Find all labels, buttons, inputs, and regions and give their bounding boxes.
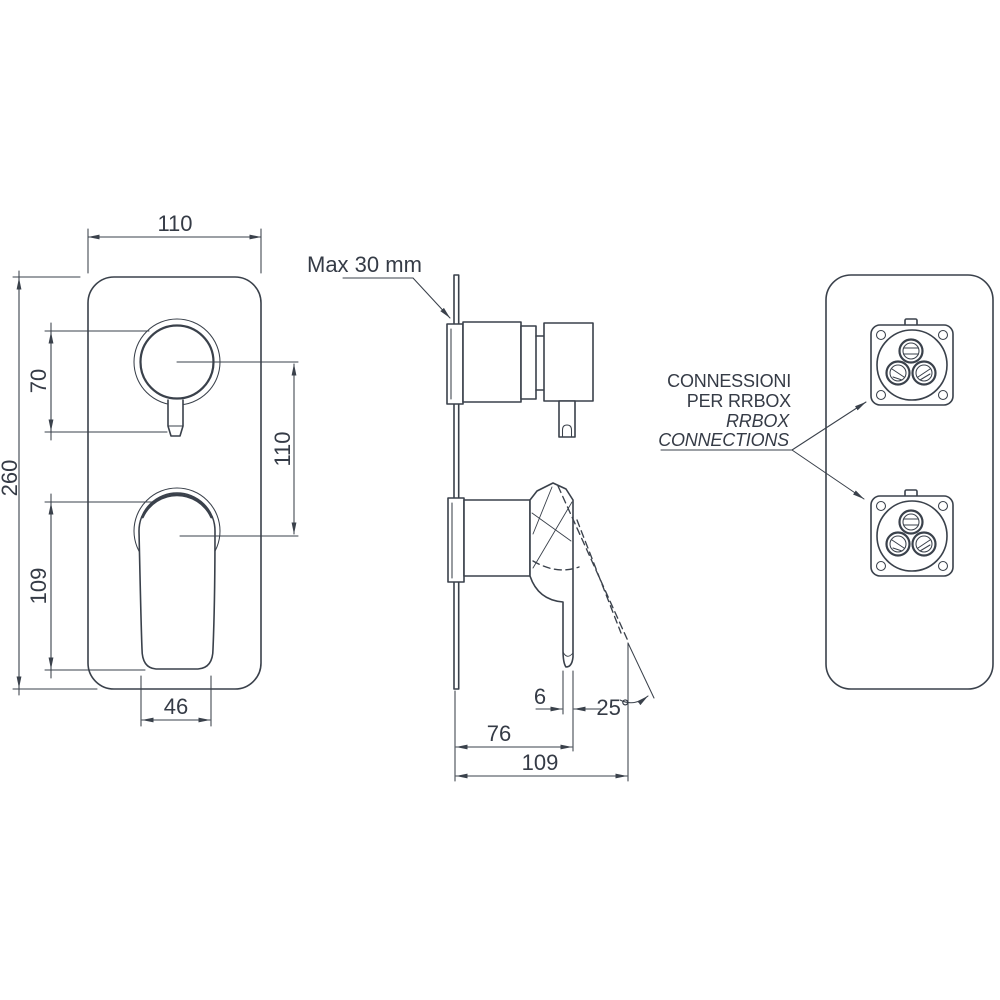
side-view: Max 30 mm: [307, 252, 654, 781]
wall-note-leader: [413, 278, 450, 318]
dim-label-angle: 25°: [596, 695, 629, 720]
side-lever-assembly: [448, 483, 628, 667]
dim-centers-distance: 110: [270, 364, 295, 534]
wall-thickness-note: Max 30 mm: [307, 252, 450, 318]
note-line-3: RRBOX: [726, 411, 790, 431]
dim-label-lever-width: 46: [164, 694, 188, 719]
wall-note-label: Max 30 mm: [307, 252, 422, 277]
dim-lever-offset: 6: [534, 671, 601, 751]
knob-body-side: [463, 322, 521, 402]
dim-label-centers-distance: 110: [270, 431, 295, 466]
dim-depth-total: 109: [456, 750, 627, 776]
dim-label-lever-offset: 6: [534, 684, 546, 709]
dim-label-front-width: 110: [157, 211, 192, 236]
box-bottom-port-3: [913, 533, 936, 556]
knob-cap-side: [544, 323, 593, 401]
dim-label-front-height: 260: [0, 460, 22, 497]
lever-cylinder-side: [464, 500, 530, 576]
lever-flange-side: [448, 498, 464, 582]
knob-ring-side: [521, 326, 536, 399]
note-line-2: PER RRBOX: [687, 391, 791, 411]
box-bottom-body: [871, 496, 953, 576]
connection-box-bottom: [871, 490, 953, 576]
box-top-port-2: [887, 362, 910, 385]
knob-tab-side: [559, 401, 575, 437]
dim-lever-width: 46: [141, 676, 211, 726]
front-view: 110 260 70 109 110: [0, 211, 298, 726]
knob-tab-fill: [168, 400, 183, 436]
technical-drawing-page: 110 260 70 109 110: [0, 0, 1000, 1000]
note-leader-top: [792, 402, 866, 450]
box-bottom-port-2: [887, 533, 910, 556]
side-knob-assembly: [447, 322, 593, 437]
dim-front-width: 110: [88, 211, 261, 273]
lever-open-position-dashed-2: [577, 520, 621, 633]
dim-lever-height: 109: [26, 494, 152, 678]
dim-label-knob-height: 70: [26, 369, 51, 393]
connections-note: CONNESSIONI PER RRBOX RRBOX CONNECTIONS: [658, 371, 866, 499]
dim-front-height: 260: [0, 271, 97, 695]
lever-handle: [139, 493, 215, 669]
connection-box-top: [871, 319, 953, 405]
note-line-1: CONNESSIONI: [667, 371, 791, 391]
note-leader-bottom: [792, 450, 864, 499]
knob-flange-side: [447, 324, 463, 404]
box-top-port-3: [913, 362, 936, 385]
drawing-canvas: 110 260 70 109 110: [0, 0, 1000, 1000]
dim-label-depth-body: 76: [487, 721, 511, 746]
dim-label-depth-total: 109: [522, 750, 559, 775]
note-line-4: CONNECTIONS: [658, 430, 789, 450]
box-top-body: [871, 325, 953, 405]
angle-construction: 25°: [596, 643, 654, 781]
dim-label-lever-height: 109: [26, 568, 51, 605]
back-view: CONNESSIONI PER RRBOX RRBOX CONNECTIONS: [658, 275, 993, 689]
